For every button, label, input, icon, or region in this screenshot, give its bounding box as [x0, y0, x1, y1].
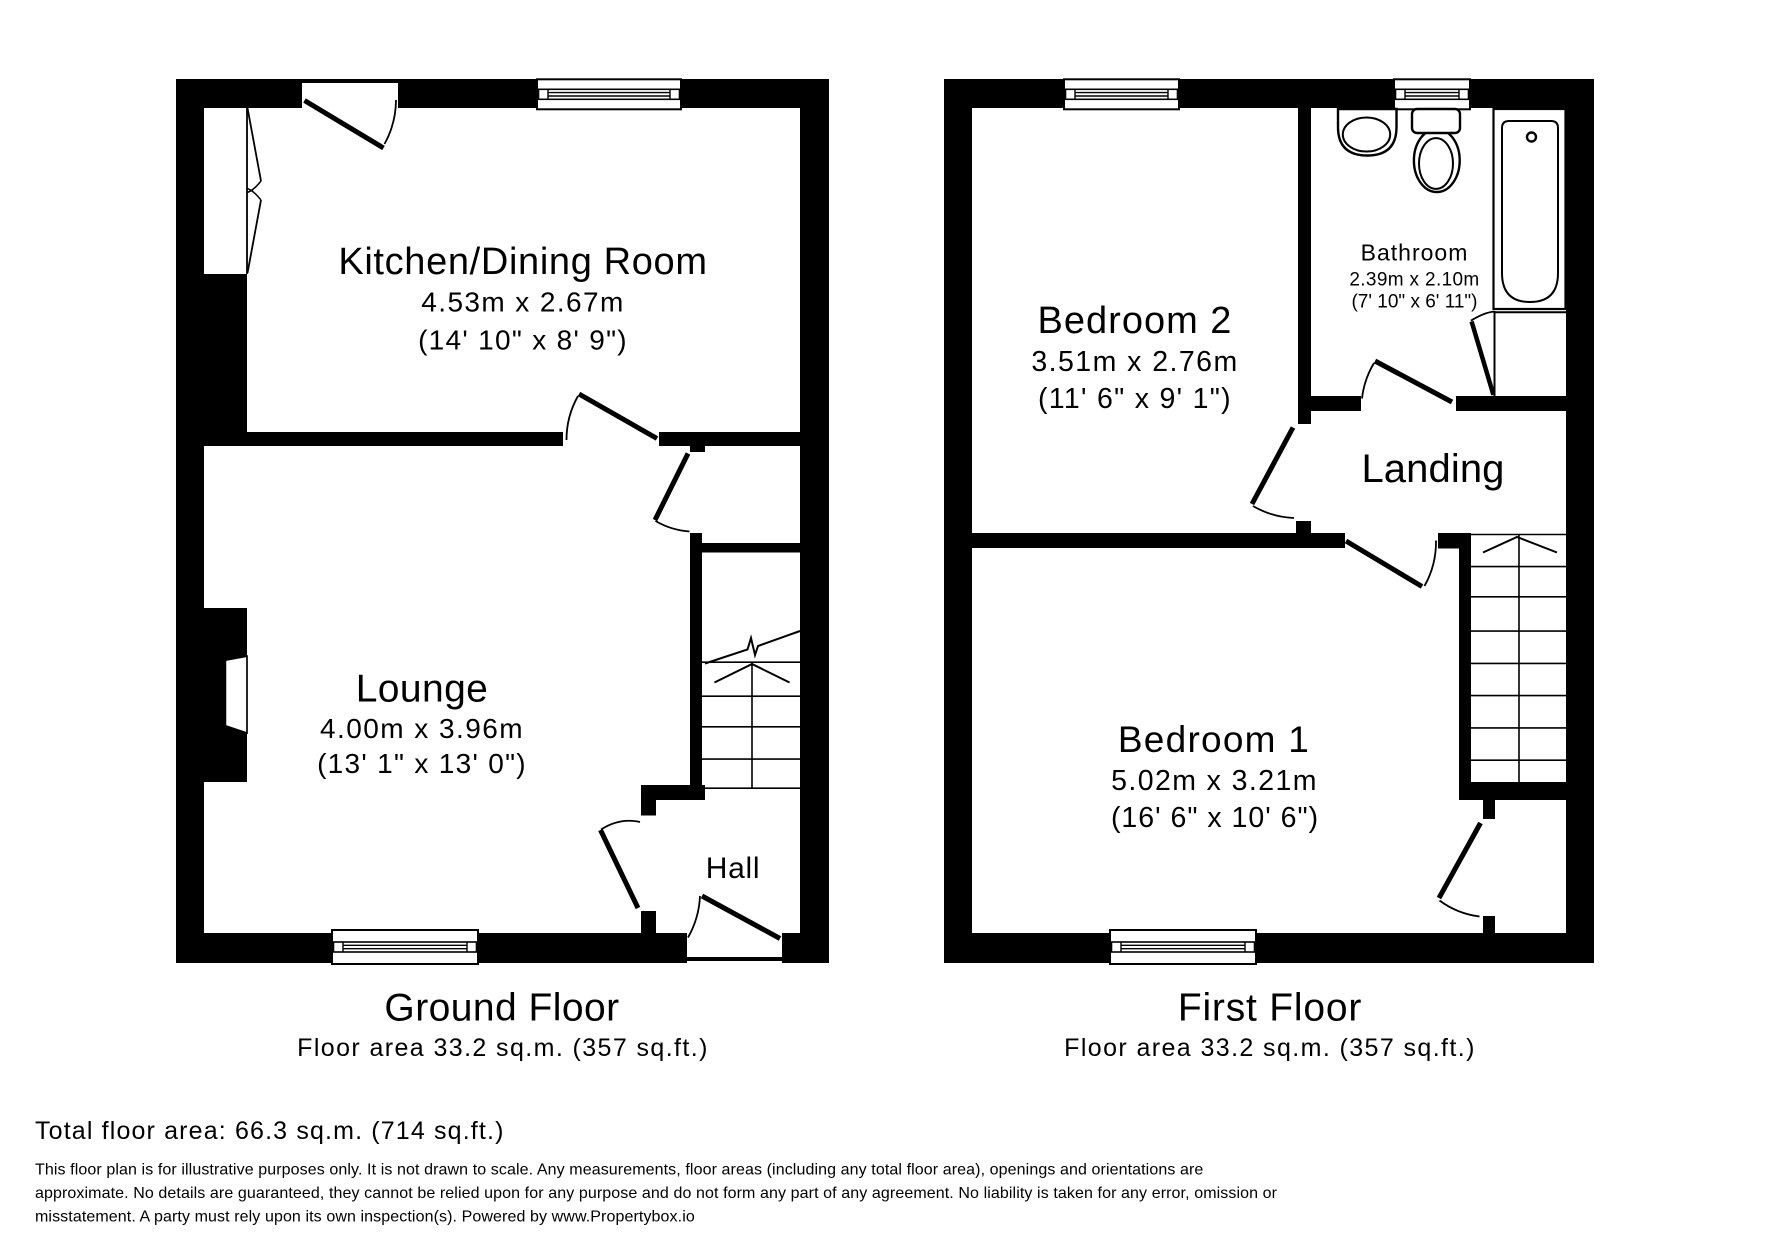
svg-text:4.00m x 3.96m: 4.00m x 3.96m	[320, 713, 524, 744]
svg-text:Hall: Hall	[706, 852, 760, 885]
svg-text:(11' 6" x 9' 1"): (11' 6" x 9' 1")	[1038, 383, 1232, 415]
svg-text:Bathroom: Bathroom	[1361, 240, 1469, 266]
svg-text:(14' 10" x 8' 9"): (14' 10" x 8' 9")	[418, 325, 628, 356]
svg-text:approximate. No details are gu: approximate. No details are guaranteed, …	[35, 1185, 1278, 1202]
svg-text:Landing: Landing	[1361, 447, 1504, 491]
svg-text:(16' 6" x 10' 6"): (16' 6" x 10' 6")	[1111, 802, 1319, 834]
svg-text:Total floor area: 66.3 sq.m. (: Total floor area: 66.3 sq.m. (714 sq.ft.…	[35, 1117, 505, 1145]
svg-text:Ground Floor: Ground Floor	[384, 987, 619, 1030]
svg-text:Floor area 33.2 sq.m. (357 sq.: Floor area 33.2 sq.m. (357 sq.ft.)	[297, 1034, 709, 1062]
svg-text:(13' 1" x 13' 0"): (13' 1" x 13' 0")	[317, 748, 527, 779]
svg-text:First Floor: First Floor	[1178, 987, 1362, 1030]
svg-text:Bedroom 1: Bedroom 1	[1118, 719, 1310, 760]
svg-text:3.51m x 2.76m: 3.51m x 2.76m	[1031, 346, 1238, 378]
svg-text:This floor plan is for illustr: This floor plan is for illustrative purp…	[35, 1162, 1203, 1179]
svg-text:Bedroom 2: Bedroom 2	[1038, 300, 1233, 342]
svg-text:Kitchen/Dining Room: Kitchen/Dining Room	[338, 241, 707, 283]
svg-text:misstatement. A party must rel: misstatement. A party must rely upon its…	[35, 1209, 695, 1226]
svg-text:2.39m x 2.10m: 2.39m x 2.10m	[1349, 270, 1479, 291]
svg-text:Lounge: Lounge	[356, 668, 489, 711]
svg-text:5.02m x 3.21m: 5.02m x 3.21m	[1111, 765, 1318, 797]
svg-text:Floor area 33.2 sq.m. (357 sq.: Floor area 33.2 sq.m. (357 sq.ft.)	[1064, 1034, 1476, 1062]
svg-text:4.53m x 2.67m: 4.53m x 2.67m	[421, 287, 624, 318]
svg-text:(7' 10" x 6' 11"): (7' 10" x 6' 11")	[1351, 292, 1477, 313]
